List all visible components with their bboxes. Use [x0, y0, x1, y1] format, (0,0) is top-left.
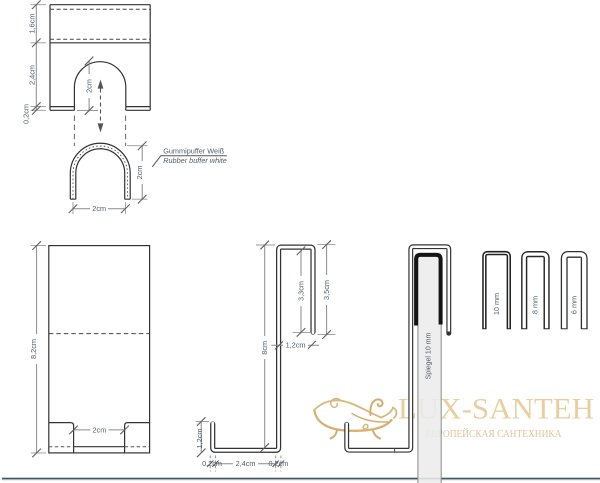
svg-text:3,5cm: 3,5cm [322, 280, 331, 300]
svg-text:6 mm: 6 mm [570, 296, 579, 314]
svg-text:8 mm: 8 mm [531, 296, 540, 314]
svg-text:8,2cm: 8,2cm [29, 339, 38, 359]
svg-text:1,2cm: 1,2cm [195, 429, 204, 449]
svg-text:10 mm: 10 mm [492, 293, 501, 315]
svg-text:2cm: 2cm [135, 166, 144, 180]
svg-text:2cm: 2cm [85, 79, 94, 93]
svg-text:0,2cm: 0,2cm [202, 459, 222, 468]
svg-text:Spiegel 10 mm: Spiegel 10 mm [425, 332, 432, 379]
svg-text:3,3cm: 3,3cm [297, 281, 306, 301]
svg-text:1,6cm: 1,6cm [27, 14, 36, 34]
svg-text:2,4cm: 2,4cm [27, 65, 36, 85]
svg-text:0,2cm: 0,2cm [21, 104, 30, 124]
svg-text:8cm: 8cm [260, 341, 269, 355]
svg-text:2,4cm: 2,4cm [236, 459, 256, 468]
svg-text:ЕВРОПЕЙСКАЯ САНТЕХНИКА: ЕВРОПЕЙСКАЯ САНТЕХНИКА [426, 428, 563, 440]
svg-text:2cm: 2cm [92, 204, 106, 213]
svg-text:0,2cm: 0,2cm [268, 459, 288, 468]
svg-text:2cm: 2cm [93, 425, 107, 434]
svg-text:Gummipuffer Weiß: Gummipuffer Weiß [163, 147, 225, 156]
svg-text:1,2cm: 1,2cm [286, 341, 306, 350]
svg-text:Rubber buffer white: Rubber buffer white [163, 156, 227, 165]
